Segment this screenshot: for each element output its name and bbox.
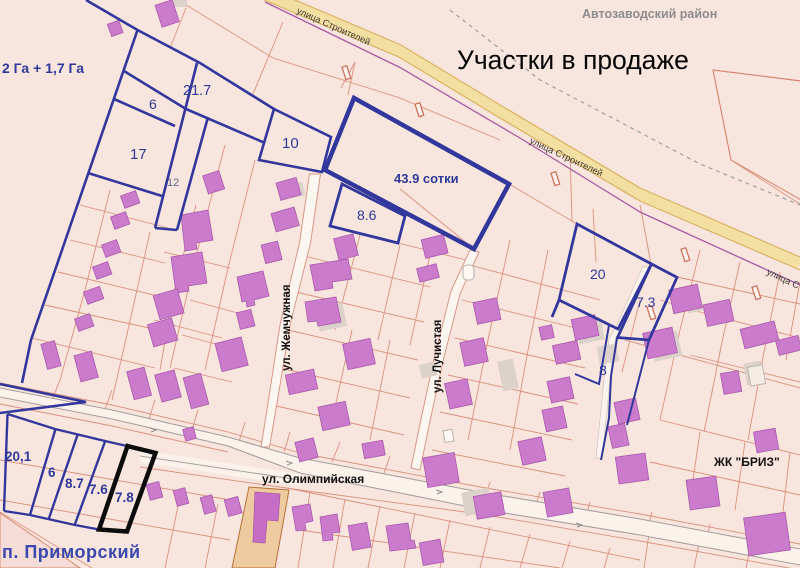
svg-text:8: 8 [599, 362, 607, 378]
svg-text:10: 10 [282, 135, 299, 152]
svg-text:ЖК "БРИЗ": ЖК "БРИЗ" [713, 455, 780, 469]
svg-text:ул. Жемчужная: ул. Жемчужная [281, 284, 293, 371]
svg-text:7.6: 7.6 [89, 482, 108, 497]
svg-text:12: 12 [167, 177, 179, 189]
svg-text:8.6: 8.6 [357, 207, 377, 223]
svg-text:7.8: 7.8 [115, 490, 134, 505]
svg-text:Автозаводский район: Автозаводский район [582, 7, 717, 21]
svg-text:ул. Лучистая: ул. Лучистая [432, 320, 444, 393]
svg-text:21.7: 21.7 [183, 83, 211, 99]
svg-text:2 Га + 1,7 Га: 2 Га + 1,7 Га [2, 60, 84, 76]
svg-text:43.9 сотки: 43.9 сотки [394, 171, 459, 186]
svg-text:Участки в продаже: Участки в продаже [457, 45, 689, 75]
svg-text:20: 20 [590, 266, 606, 282]
svg-text:ул. Олимпийская: ул. Олимпийская [262, 472, 364, 486]
svg-text:п. Приморский: п. Приморский [2, 542, 141, 562]
svg-text:7.3: 7.3 [636, 294, 656, 310]
svg-text:6: 6 [149, 96, 157, 112]
svg-text:17: 17 [130, 146, 147, 163]
svg-text:6: 6 [48, 465, 56, 480]
svg-text:8.7: 8.7 [65, 476, 84, 491]
svg-text:20,1: 20,1 [5, 449, 32, 464]
